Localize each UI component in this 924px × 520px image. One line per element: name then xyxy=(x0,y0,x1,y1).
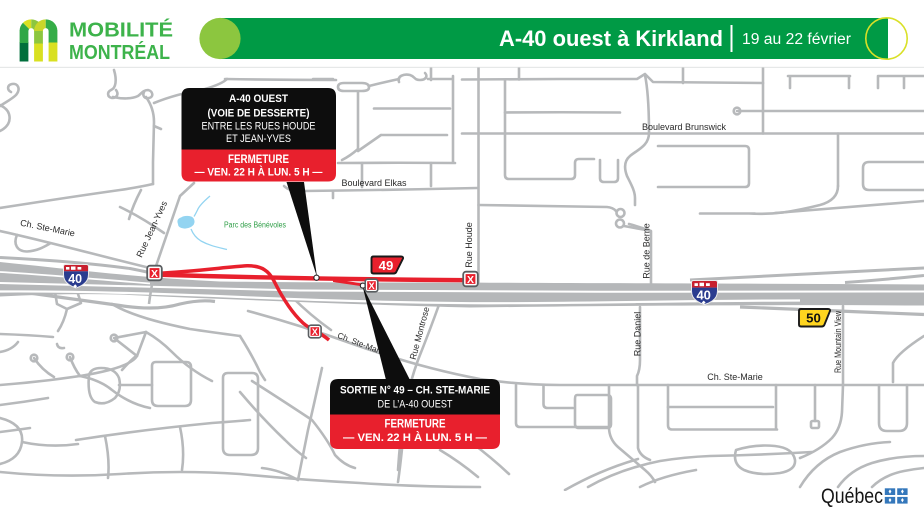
svg-text:Parc des Bénévoles: Parc des Bénévoles xyxy=(224,221,286,230)
svg-text:X: X xyxy=(368,281,375,291)
svg-text:Rue de Berne: Rue de Berne xyxy=(642,223,652,279)
svg-text:Ch. Ste-Marie: Ch. Ste-Marie xyxy=(707,372,763,382)
svg-text:— VEN. 22 H À LUN. 5 H —: — VEN. 22 H À LUN. 5 H — xyxy=(195,166,323,179)
svg-text:Rue Houde: Rue Houde xyxy=(464,222,474,268)
svg-text:ENTRE LES RUES HOUDE: ENTRE LES RUES HOUDE xyxy=(202,121,316,133)
svg-text:ET JEAN-YVES: ET JEAN-YVES xyxy=(226,133,291,145)
svg-text:Rue Mountain View: Rue Mountain View xyxy=(833,311,843,373)
svg-text:Québec: Québec xyxy=(821,484,883,508)
svg-text:FERMETURE: FERMETURE xyxy=(228,154,289,166)
svg-text:A-40 ouest à Kirkland: A-40 ouest à Kirkland xyxy=(499,26,723,51)
svg-text:40: 40 xyxy=(696,288,710,303)
svg-text:X: X xyxy=(312,327,319,337)
svg-text:Rue Daniel: Rue Daniel xyxy=(633,312,643,357)
svg-text:Boulevard Elkas: Boulevard Elkas xyxy=(341,178,407,188)
svg-text:MONTRÉAL: MONTRÉAL xyxy=(69,41,170,64)
svg-text:SORTIE N° 49 – CH. STE-MARIE: SORTIE N° 49 – CH. STE-MARIE xyxy=(340,385,490,397)
svg-text:40: 40 xyxy=(68,272,82,286)
svg-text:— VEN. 22 H À LUN. 5 H —: — VEN. 22 H À LUN. 5 H — xyxy=(343,431,487,444)
svg-text:X: X xyxy=(151,268,158,280)
svg-text:(VOIE DE DESSERTE): (VOIE DE DESSERTE) xyxy=(208,108,310,120)
svg-text:X: X xyxy=(467,274,474,286)
svg-text:FERMETURE: FERMETURE xyxy=(385,419,446,431)
svg-text:50: 50 xyxy=(806,311,821,326)
svg-text:Boulevard Brunswick: Boulevard Brunswick xyxy=(642,122,727,132)
svg-text:MOBILITÉ: MOBILITÉ xyxy=(69,19,173,42)
svg-text:A-40 OUEST: A-40 OUEST xyxy=(229,93,288,105)
svg-text:49: 49 xyxy=(379,258,394,273)
svg-text:DE L’A-40 OUEST: DE L’A-40 OUEST xyxy=(378,399,453,411)
svg-text:19 au 22 février: 19 au 22 février xyxy=(742,31,851,48)
